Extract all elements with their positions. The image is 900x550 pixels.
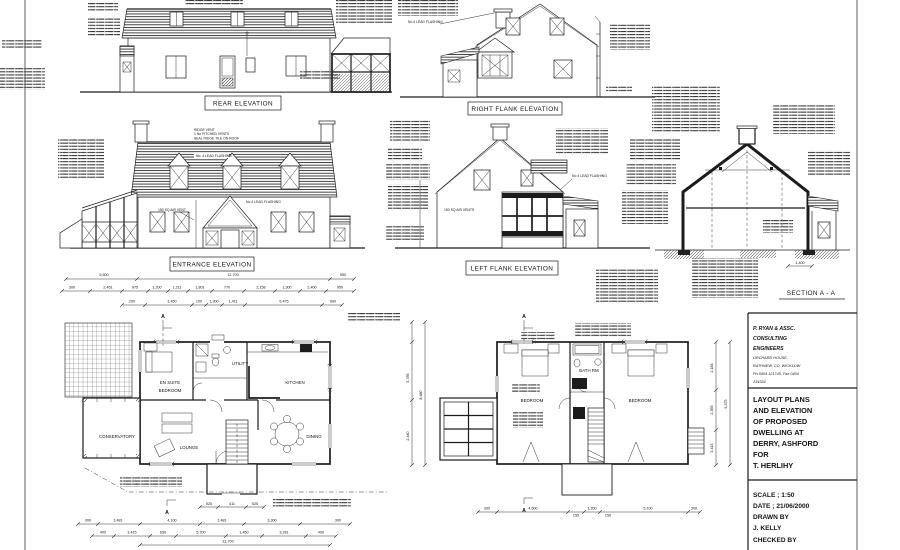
air-vents-note: 150 SQ AIR VENTS <box>444 208 475 212</box>
annotation-block <box>626 164 676 186</box>
section-title: SECTION A - A <box>787 290 836 297</box>
room-label: BEDROOM <box>629 398 652 403</box>
drawn-by-value: J. KELLY <box>753 525 782 532</box>
lead-flashing-note: No 4 LEAD FLASHING <box>572 174 607 178</box>
wardrobe <box>612 344 626 353</box>
dim-label: 3,450 <box>167 300 176 304</box>
firm-address: RATHNEW, CO. WICKLOW <box>753 364 801 368</box>
chimney <box>739 128 755 144</box>
dim-label: 2,158 <box>256 286 265 290</box>
dim-label: 525 <box>206 502 212 506</box>
annotation-block <box>88 17 120 37</box>
roof-hatch <box>122 9 336 38</box>
annotation-block <box>336 0 392 24</box>
conservatory-roof-plan <box>440 398 497 460</box>
dim-label: 2,451 <box>103 286 112 290</box>
back-step <box>212 335 224 340</box>
dim-label: 1,450 <box>239 531 248 535</box>
gf-porch-dims: 525 411 525 <box>198 502 266 509</box>
dim-label: 3,415 <box>710 443 714 452</box>
dim-label: 1,211 <box>173 286 182 290</box>
dim-label: 200 <box>129 300 135 304</box>
dim-label: 4,600 <box>528 507 537 511</box>
front-conservatory <box>60 190 137 248</box>
entrance-elevation-drawing: RIDGE VENT 1 No PITCHED VENTS SEAL RIDGE… <box>58 121 365 271</box>
washing-machine <box>196 362 206 372</box>
scale-value: SCALE ; 1:50 <box>753 492 795 499</box>
cooker <box>300 344 312 352</box>
room-label: CONSERVATORY <box>99 434 135 439</box>
dim-label: 950 <box>337 286 343 290</box>
dim-label: 300 <box>484 507 490 511</box>
firm-phone: Ph.0404 121745, Fax 0404 <box>753 372 799 376</box>
room-label: BATH RM <box>579 368 599 373</box>
right-flank-elevation-drawing: No 4 LEAD FLASHING RIGHT FLANK ELEVATION <box>400 4 655 115</box>
sofa <box>162 424 192 433</box>
dim-label: 100 <box>196 300 202 304</box>
dim-label: 300 <box>335 519 341 523</box>
annotation-block <box>692 258 758 298</box>
window <box>246 58 255 72</box>
dim-label: 1,200 <box>587 507 596 511</box>
rear-conservatory <box>331 38 390 92</box>
wardrobe <box>144 343 157 351</box>
project-title-line: DERRY, ASHFORD <box>753 439 819 448</box>
section-outline <box>683 144 808 250</box>
firm-name: CONSULTING <box>753 336 787 342</box>
patio-grid <box>65 323 132 397</box>
lead-flashing-note: No 4 LEAD FLASHING <box>408 20 443 24</box>
room-label: EN SUITE <box>160 380 180 385</box>
chimney-flue <box>572 378 587 389</box>
dim-label: 1,200 <box>152 286 161 290</box>
flat-dormer <box>531 160 567 173</box>
side-lean-to <box>441 47 479 97</box>
room-label: LOUNGE <box>180 445 199 450</box>
title-block: P. RYAN & ASSC. CONSULTING ENGINEERS ORC… <box>748 313 857 550</box>
external-steps <box>688 428 704 454</box>
ground-floor-plan: EN SUITE BEDROOM UTILITY KITCHEN CONSERV… <box>65 313 427 547</box>
annotation-block <box>120 477 182 487</box>
stairs <box>226 420 248 464</box>
dim-label: 5,700 <box>196 531 205 535</box>
wardrobe <box>548 344 559 353</box>
dim-label: 770 <box>224 286 230 290</box>
dim-label: 2,400 <box>307 286 316 290</box>
air-vent-note: 150 SQ AIR VENT <box>158 208 186 212</box>
dim-label: 1,411 <box>229 300 238 304</box>
dim-label: 8,480 <box>419 390 423 399</box>
right-flank-title: RIGHT FLANK ELEVATION <box>471 106 558 113</box>
conservatory-glazing <box>502 192 563 248</box>
annotation-block <box>610 24 650 50</box>
firm-name: ENGINEERS <box>753 346 784 352</box>
dim-label: 300 <box>69 286 75 290</box>
drawn-by-label: DRAWN BY <box>753 514 790 521</box>
annotation-block <box>390 120 430 142</box>
annotation-block <box>556 128 608 154</box>
ridge-vent-note-3: SEAL RIDGE TILE ON ROOF <box>194 136 239 140</box>
annotation-block <box>185 0 243 6</box>
wardrobe <box>504 344 518 353</box>
dim-label: 12,700 <box>222 540 233 544</box>
annotation-block <box>273 499 351 507</box>
chimney <box>493 126 507 140</box>
project-title-line: AND ELEVATION <box>753 406 812 415</box>
project-title-line: FOR <box>753 450 769 459</box>
dim-label: 150 <box>573 514 579 518</box>
dim-label: 4,100 <box>167 519 176 523</box>
side-lean-to <box>563 196 598 248</box>
drawing-sheet: REAR ELEVATION No 4 LEAD FLASHING RI <box>0 0 900 550</box>
annotation-block <box>521 332 555 340</box>
dim-label: 1,300 <box>282 286 291 290</box>
dim-label: 525 <box>252 502 258 506</box>
side-tower <box>330 216 350 248</box>
annotation-block <box>513 412 543 428</box>
annotation-block <box>386 164 430 180</box>
annotation-block <box>808 150 850 176</box>
section-marker: A <box>522 314 526 320</box>
firm-address: ORCHARD HOUSE, <box>753 356 788 360</box>
wardrobe <box>656 344 667 353</box>
project-title-line: OF PROPOSED <box>753 417 808 426</box>
dim-label: 150 <box>605 514 611 518</box>
dim-label: 2,184 <box>710 363 714 372</box>
dim-label: 400 <box>318 531 324 535</box>
annotation-block <box>388 147 422 161</box>
lead-flashing-note: No 4 LEAD FLASHING <box>246 200 281 204</box>
void <box>573 407 585 419</box>
firm-phone: 234324 <box>752 380 766 384</box>
ff-vertical-dims: 2,184 2,365 3,415 9,375 <box>710 340 732 467</box>
chimney <box>135 123 147 142</box>
dim-label: 1,300 <box>209 300 218 304</box>
gf-vertical-dims: 5,785 2,440 8,480 <box>406 320 427 467</box>
dim-label: 9,375 <box>724 399 728 408</box>
project-title-line: LAYOUT PLANS <box>753 395 810 404</box>
room-label: BEDROOM <box>521 398 544 403</box>
dim-label: 2,365 <box>710 405 714 414</box>
porch-gable <box>476 38 514 78</box>
gf-bottom-dims: 300 3,481 4,100 2,481 3,300 300 400 3,41… <box>76 519 352 547</box>
annotation-block <box>652 86 720 132</box>
annotation-block <box>388 184 428 210</box>
annotation-block <box>300 70 340 79</box>
dim-label: 300 <box>85 519 91 523</box>
dim-label: 975 <box>132 286 138 290</box>
annotation-block <box>2 40 42 48</box>
annotation-block <box>512 384 540 393</box>
dim-label: 2,440 <box>406 431 410 440</box>
section-marker: A <box>161 314 165 320</box>
lead-flashing-note: No. 4 LEAD FLASHING <box>196 154 232 158</box>
dim-label: 5,785 <box>406 373 410 382</box>
side-lean-to <box>808 196 838 250</box>
room-label: BEDROOM <box>159 388 182 393</box>
section-marker: A <box>165 510 169 516</box>
room-label: UTILITY <box>232 361 248 366</box>
dim-label: 400 <box>100 531 106 535</box>
project-title-line: T. HERLIHY <box>753 461 793 470</box>
firm-name: P. RYAN & ASSC. <box>753 326 795 332</box>
first-floor-plan: BEDROOM BATH RM BEDROOM A A 300 4,600 15… <box>440 314 732 518</box>
entrance-elevation-title: ENTRANCE ELEVATION <box>172 262 251 269</box>
dim-label: 950 <box>340 273 346 277</box>
entrance-dimension-rows: 5,600 12,700 950 300 2,451 975 1,200 1,2… <box>60 273 356 307</box>
annotation-block <box>348 313 400 322</box>
annotation-block <box>630 138 680 160</box>
annotation-block <box>622 190 668 224</box>
dim-label: 5,100 <box>643 507 652 511</box>
conservatory-plan <box>83 398 140 458</box>
date-value: DATE ; 21/06/2000 <box>753 503 810 510</box>
annotation-block <box>596 268 658 302</box>
annotation-block <box>575 323 631 337</box>
left-flank-elevation-drawing: 150 SQ AIR VENTS No 4 LEAD FLASHING LEFT… <box>386 120 658 302</box>
dim-label: 3,415 <box>127 531 136 535</box>
dim-label: 2,481 <box>217 519 226 523</box>
dim-label: 300 <box>691 507 697 511</box>
project-title-line: DWELLING AT <box>753 428 804 437</box>
checked-by-label: CHECKED BY <box>753 537 797 544</box>
annotation-block <box>88 2 118 12</box>
dim-label: 3,281 <box>279 531 288 535</box>
annotation-block <box>386 226 424 240</box>
section-dim: 1,400 <box>795 261 804 265</box>
dim-label: 800 <box>330 300 336 304</box>
annotation-block <box>773 104 835 134</box>
annotation-block <box>398 0 458 16</box>
annotation-block <box>58 138 104 178</box>
lower-stair-block <box>562 464 612 495</box>
sofa <box>162 413 192 422</box>
dim-label: 411 <box>229 502 235 506</box>
dim-label: 12,700 <box>227 273 238 277</box>
dim-label: 5,475 <box>279 300 288 304</box>
dim-label: 3,481 <box>113 519 122 523</box>
dim-label: 3,300 <box>267 519 276 523</box>
dim-label: 5,600 <box>99 273 108 277</box>
architectural-drawing: REAR ELEVATION No 4 LEAD FLASHING RI <box>0 0 900 550</box>
room-label: DINING <box>306 434 322 439</box>
annotation-block <box>606 86 632 92</box>
stairs <box>588 408 604 462</box>
annotation-block <box>0 68 45 90</box>
rear-elevation-title: REAR ELEVATION <box>213 101 273 108</box>
annotation-block <box>763 219 793 233</box>
chimney <box>321 123 333 142</box>
room-label: KITCHEN <box>285 380 304 385</box>
section-marker: A <box>522 508 526 514</box>
dim-label: 650 <box>160 531 166 535</box>
entrance-door <box>221 230 239 248</box>
left-flank-title: LEFT FLANK ELEVATION <box>471 266 554 273</box>
dim-label: 1,801 <box>195 286 204 290</box>
ff-bottom-dims: 300 4,600 150 1,200 150 5,100 300 <box>476 507 702 518</box>
